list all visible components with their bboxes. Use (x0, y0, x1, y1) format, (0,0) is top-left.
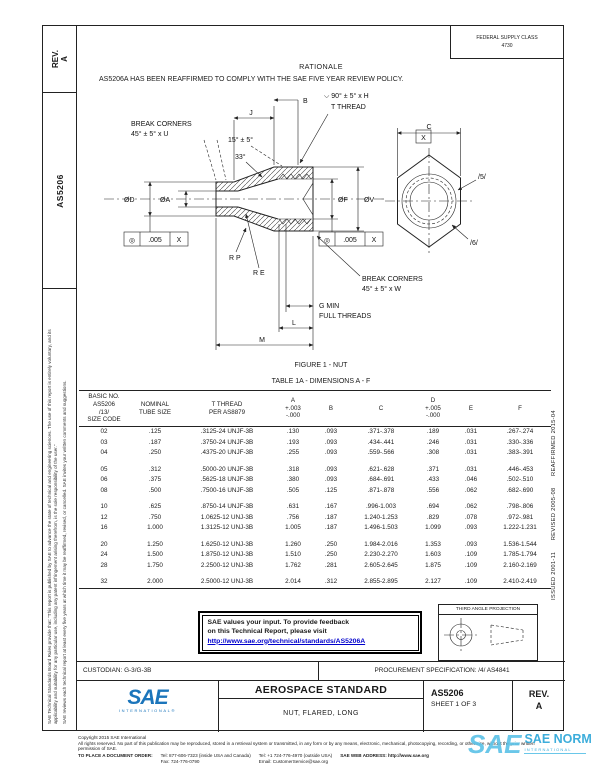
table-cell: 32 (79, 577, 129, 588)
table-cell: 1.8750-12 UNJ-3B (181, 550, 273, 561)
label-dim-l: L (292, 320, 296, 327)
table-cell: 1.250 (129, 540, 181, 551)
table-cell: .031 (453, 438, 489, 449)
table-cell: .125 (313, 486, 349, 497)
sae-norm-watermark: SAE SAE NORM INTERNATIONAL (468, 733, 600, 755)
third-angle-projection-box: THIRD ANGLE PROJECTION (438, 604, 538, 661)
table-cell: .031 (453, 465, 489, 476)
table-row: 281.7502.2500-12 UNJ-3B1.762.2812.605-2.… (79, 561, 551, 572)
table-cell: 1.005 (273, 523, 313, 534)
dimensions-table: BASIC NO.AS5206/13/SIZE CODENOMINALTUBE … (79, 390, 551, 589)
table-row: 161.0001.3125-12 UNJ-3B1.005.1871.496-1.… (79, 523, 551, 534)
table-row: 02.125.3125-24 UNJF-3B.130.093.371-.378.… (79, 427, 551, 438)
rev-box-text: REV. A (50, 50, 68, 68)
table-cell: 2.5000-12 UNJ-3B (181, 577, 273, 588)
table-header-cell: F (489, 391, 551, 427)
table-cell: .312 (313, 577, 349, 588)
table-cell: .383-.391 (489, 448, 551, 459)
table-cell: .093 (313, 465, 349, 476)
table-cell: 28 (79, 561, 129, 572)
projection-symbol (439, 615, 535, 655)
table-cell: .371-.378 (349, 427, 413, 438)
table-cell: .798-.806 (489, 502, 551, 513)
table-cell: .109 (453, 550, 489, 561)
table-header-cell: BASIC NO.AS5206/13/SIZE CODE (79, 391, 129, 427)
table-cell: .187 (313, 513, 349, 524)
table-cell: .5000-20 UNJF-3B (181, 465, 273, 476)
rationale-title: RATIONALE (77, 62, 565, 71)
table-cell: .559-.566 (349, 448, 413, 459)
table-cell: 1.762 (273, 561, 313, 572)
table-cell: 06 (79, 475, 129, 486)
table-cell: 1.984-2.016 (349, 540, 413, 551)
fcf-left: ◎ .005 X (124, 216, 188, 246)
table-cell: .109 (453, 561, 489, 572)
sae-logo: SAE INTERNATIONAL® (77, 681, 218, 732)
table-cell: .318 (273, 465, 313, 476)
drawing-frame: REV. A AS5206 FEDERAL SUPPLY CLASS 4730 … (42, 25, 564, 731)
table-cell: .078 (453, 513, 489, 524)
document-title: NUT, FLARED, LONG (219, 710, 423, 717)
order-email: Email: CustomerService@sae.org (259, 759, 332, 765)
table-cell: .682-.690 (489, 486, 551, 497)
table-cell: .167 (313, 502, 349, 513)
table-cell: 12 (79, 513, 129, 524)
watermark-title: SAE NORM (524, 733, 591, 746)
table-cell: .8750-14 UNJF-3B (181, 502, 273, 513)
watermark-logo: SAE (468, 733, 521, 755)
table-cell: 02 (79, 427, 129, 438)
table-cell: 03 (79, 438, 129, 449)
table-cell: .3125-24 UNJF-3B (181, 427, 273, 438)
table-cell: .267-.274 (489, 427, 551, 438)
table-cell: 20 (79, 540, 129, 551)
label-flag-6: /6/ (470, 240, 478, 247)
table-cell: 04 (79, 448, 129, 459)
table-cell: .308 (413, 448, 453, 459)
table-cell: .093 (453, 523, 489, 534)
table-cell: .500 (129, 486, 181, 497)
table-cell: .093 (313, 427, 349, 438)
fcf-datum: X (372, 237, 377, 244)
feedback-line1: SAE values your input. To provide feedba… (208, 618, 413, 628)
rev-value: A (60, 50, 69, 68)
table-cell: .250 (313, 550, 349, 561)
table-row: 322.0002.5000-12 UNJ-3B2.014.3122.855-2.… (79, 577, 551, 588)
table-header-cell: E (453, 391, 489, 427)
label-csk-note-1: ⌵ 90° ± 5° x H (324, 92, 369, 100)
table-cell: 1.260 (273, 540, 313, 551)
label-dia-d: ØD (124, 197, 135, 204)
title-block: SAE INTERNATIONAL® AEROSPACE STANDARD NU… (77, 680, 565, 732)
table-cell: .046 (453, 475, 489, 486)
table-cell: 24 (79, 550, 129, 561)
table-cell: 1.0625-12 UNJ-3B (181, 513, 273, 524)
sheet-number: SHEET 1 OF 3 (431, 701, 512, 708)
rev-box: REV. A (43, 26, 76, 93)
table-row: 201.2501.6250-12 UNJ-3B1.260.2501.984-2.… (79, 540, 551, 551)
table-cell: .972-.981 (489, 513, 551, 524)
rev-label: REV. (513, 689, 565, 701)
label-break-corners-left-2: 45° ± 5° x U (131, 130, 168, 138)
procurement-cell: PROCUREMENT SPECIFICATION: /4/ AS4841 (319, 661, 565, 680)
table-cell: .062 (453, 486, 489, 497)
table-cell: 10 (79, 502, 129, 513)
label-dim-c: C (426, 124, 431, 131)
table-cell: .031 (453, 427, 489, 438)
table-cell: .093 (313, 475, 349, 486)
table-cell: .502-.510 (489, 475, 551, 486)
rev-label: REV. (50, 50, 59, 68)
table-row: 05.312.5000-20 UNJF-3B.318.093.621-.628.… (79, 465, 551, 476)
table-cell: 1.536-1.544 (489, 540, 551, 551)
title-block-center-cell: AEROSPACE STANDARD NUT, FLARED, LONG (218, 681, 424, 732)
table-cell: 1.875 (413, 561, 453, 572)
table-cell: 2.2500-12 UNJ-3B (181, 561, 273, 572)
table-cell: 1.353 (413, 540, 453, 551)
table-header-cell: D+.005-.000 (413, 391, 453, 427)
table-cell: 2.855-2.895 (349, 577, 413, 588)
table-header-cell: NOMINALTUBE SIZE (129, 391, 181, 427)
table-cell: 1.603 (413, 550, 453, 561)
order-fax: Fax: 724-776-0790 (161, 759, 251, 765)
table-header-cell: T THREADPER AS8879 (181, 391, 273, 427)
table-row: 10.625.8750-14 UNJF-3B.631.167.996-1.003… (79, 502, 551, 513)
label-angle-15: 15° ± 5° (228, 136, 253, 144)
table-row: 03.187.3750-24 UNJF-3B.193.093.434-.441.… (79, 438, 551, 449)
table-cell: .871-.878 (349, 486, 413, 497)
table-cell: .109 (453, 577, 489, 588)
table-row: 08.500.7500-16 UNJF-3B.505.125.871-.878.… (79, 486, 551, 497)
table-cell: 1.496-1.503 (349, 523, 413, 534)
figure-drawing: BREAK CORNERS 45° ± 5° x U 15° ± 5° 33° … (86, 84, 561, 356)
table-cell: 2.605-2.645 (349, 561, 413, 572)
table-cell: .5625-18 UNJF-3B (181, 475, 273, 486)
table-cell: .750 (129, 513, 181, 524)
table-cell: .631 (273, 502, 313, 513)
table-cell: 16 (79, 523, 129, 534)
table-row: 06.375.5625-18 UNJF-3B.380.093.684-.691.… (79, 475, 551, 486)
figure-caption: FIGURE 1 - NUT (77, 362, 565, 369)
feedback-box-inner: SAE values your input. To provide feedba… (202, 615, 419, 651)
table-cell: .556 (413, 486, 453, 497)
label-g-min: G MIN (319, 303, 339, 310)
table-cell: .093 (453, 540, 489, 551)
fsc-line2: 4730 (451, 43, 563, 51)
table-header-cell: A+.003-.000 (273, 391, 313, 427)
table-cell: 1.240-1.253 (349, 513, 413, 524)
label-full-threads: FULL THREADS (319, 313, 371, 320)
table-row: 241.5001.8750-12 UNJ-3B1.510.2502.230-2.… (79, 550, 551, 561)
standard-type: AEROSPACE STANDARD (219, 681, 423, 699)
label-dim-j: J (249, 110, 253, 117)
table-cell: .246 (413, 438, 453, 449)
table-cell: .189 (413, 427, 453, 438)
label-dim-b: B (303, 98, 308, 105)
table-cell: .694 (413, 502, 453, 513)
feedback-line2: on this Technical Report, please visit (208, 627, 413, 637)
table-cell: 2.127 (413, 577, 453, 588)
fsc-line1: FEDERAL SUPPLY CLASS (451, 35, 563, 43)
table-cell: .3750-24 UNJF-3B (181, 438, 273, 449)
table-cell: .7500-16 UNJF-3B (181, 486, 273, 497)
dim-table-header-row: BASIC NO.AS5206/13/SIZE CODENOMINALTUBE … (79, 391, 551, 427)
table-cell: .187 (129, 438, 181, 449)
table-cell: .433 (413, 475, 453, 486)
watermark-subtitle: INTERNATIONAL (524, 747, 591, 752)
table-cell: .375 (129, 475, 181, 486)
label-dia-f: ØF (338, 197, 348, 204)
table-cell: .330-.336 (489, 438, 551, 449)
table-cell: 08 (79, 486, 129, 497)
table-cell: .625 (129, 502, 181, 513)
table-cell: .371 (413, 465, 453, 476)
watermark-rule (524, 753, 586, 755)
table-cell: 1.6250-12 UNJ-3B (181, 540, 273, 551)
table-cell: 2.410-2.419 (489, 577, 551, 588)
table-cell: .187 (313, 523, 349, 534)
table-cell: .255 (273, 448, 313, 459)
dim-table-body: 02.125.3125-24 UNJF-3B.130.093.371-.378.… (79, 427, 551, 589)
table-cell: .829 (413, 513, 453, 524)
table-cell: 2.014 (273, 577, 313, 588)
table-cell: 2.160-2.169 (489, 561, 551, 572)
sae-logo-subtext: INTERNATIONAL® (77, 708, 218, 713)
fcf-tolerance: .005 (148, 237, 162, 244)
table-cell: .130 (273, 427, 313, 438)
table-cell: 1.3125-12 UNJ-3B (181, 523, 273, 534)
table-cell: 2.230-2.270 (349, 550, 413, 561)
hex-end-view: C /5/ /6/ (385, 124, 486, 254)
sae-logo-text: SAE (77, 688, 218, 708)
table-header-cell: C (349, 391, 413, 427)
table-cell: 2.000 (129, 577, 181, 588)
label-break-corners-right-1: BREAK CORNERS (362, 276, 423, 283)
table-cell: 1.785-1.794 (489, 550, 551, 561)
custodian-cell: CUSTODIAN: G-3/G-3B (77, 661, 319, 680)
order-web: SAE WEB ADDRESS: http://www.sae.org (340, 753, 429, 764)
table-cell: .312 (129, 465, 181, 476)
document-number: AS5206 (55, 174, 65, 208)
label-flag-5: /5/ (478, 174, 486, 181)
table-title: TABLE 1A - DIMENSIONS A - F (77, 378, 565, 385)
fcf-right: ◎ .005 X (319, 219, 383, 246)
table-cell: .031 (453, 448, 489, 459)
table-cell: 1.750 (129, 561, 181, 572)
scanned-standard-page: { "left_margin": { "rev_label": "REV.", … (0, 0, 600, 776)
table-cell: 05 (79, 465, 129, 476)
label-dim-m: M (259, 337, 265, 344)
table-cell: .756 (273, 513, 313, 524)
table-row: 04.250.4375-20 UNJF-3B.255.093.559-.566.… (79, 448, 551, 459)
document-number-box: AS5206 (43, 93, 76, 289)
rationale-text: AS5206A HAS BEEN REAFFIRMED TO COMPLY WI… (99, 76, 403, 83)
table-cell: .684-.691 (349, 475, 413, 486)
label-break-corners-right-2: 45° ± 5° x W (362, 285, 401, 293)
table-cell: .380 (273, 475, 313, 486)
title-block-number-cell: AS5206 SHEET 1 OF 3 (424, 681, 513, 732)
label-dia-a: ØA (160, 197, 170, 204)
table-cell: 1.000 (129, 523, 181, 534)
table-cell: 1.099 (413, 523, 453, 534)
label-angle-33: 33° (235, 153, 246, 161)
label-radius-e: R E (253, 270, 265, 277)
label-datum-x: X (421, 135, 426, 142)
fcf-datum: X (177, 237, 182, 244)
feedback-box: SAE values your input. To provide feedba… (198, 611, 422, 654)
table-cell: .4375-20 UNJF-3B (181, 448, 273, 459)
label-csk-note-2: T THREAD (331, 104, 366, 111)
label-radius-p: R P (229, 255, 241, 262)
label-break-corners-left-1: BREAK CORNERS (131, 121, 192, 128)
table-cell: .446-.453 (489, 465, 551, 476)
label-dia-v: ØV (364, 197, 374, 204)
table-cell: .250 (313, 540, 349, 551)
table-cell: .250 (129, 448, 181, 459)
table-cell: .125 (129, 427, 181, 438)
table-cell: .996-1.003 (349, 502, 413, 513)
federal-supply-class-box: FEDERAL SUPPLY CLASS 4730 (450, 26, 563, 59)
table-cell: 1.222-1.231 (489, 523, 551, 534)
table-cell: .505 (273, 486, 313, 497)
table-header-cell: B (313, 391, 349, 427)
document-number: AS5206 (431, 688, 512, 698)
order-label: TO PLACE A DOCUMENT ORDER: (78, 753, 153, 764)
table-cell: .434-.441 (349, 438, 413, 449)
rev-value: A (513, 701, 565, 713)
projection-title: THIRD ANGLE PROJECTION (439, 605, 537, 615)
feedback-link[interactable]: http://www.sae.org/technical/standards/A… (208, 638, 366, 645)
left-column: REV. A AS5206 (43, 26, 77, 730)
table-cell: 1.510 (273, 550, 313, 561)
table-cell: .621-.628 (349, 465, 413, 476)
fcf-tolerance: .005 (343, 237, 357, 244)
title-block-rev-cell: REV. A (513, 681, 565, 732)
table-cell: 1.500 (129, 550, 181, 561)
table-cell: .062 (453, 502, 489, 513)
table-cell: .093 (313, 448, 349, 459)
fcf-symbol: ◎ (129, 238, 135, 245)
table-cell: .193 (273, 438, 313, 449)
table-row: 12.7501.0625-12 UNJ-3B.756.1871.240-1.25… (79, 513, 551, 524)
table-cell: .281 (313, 561, 349, 572)
table-cell: .093 (313, 438, 349, 449)
